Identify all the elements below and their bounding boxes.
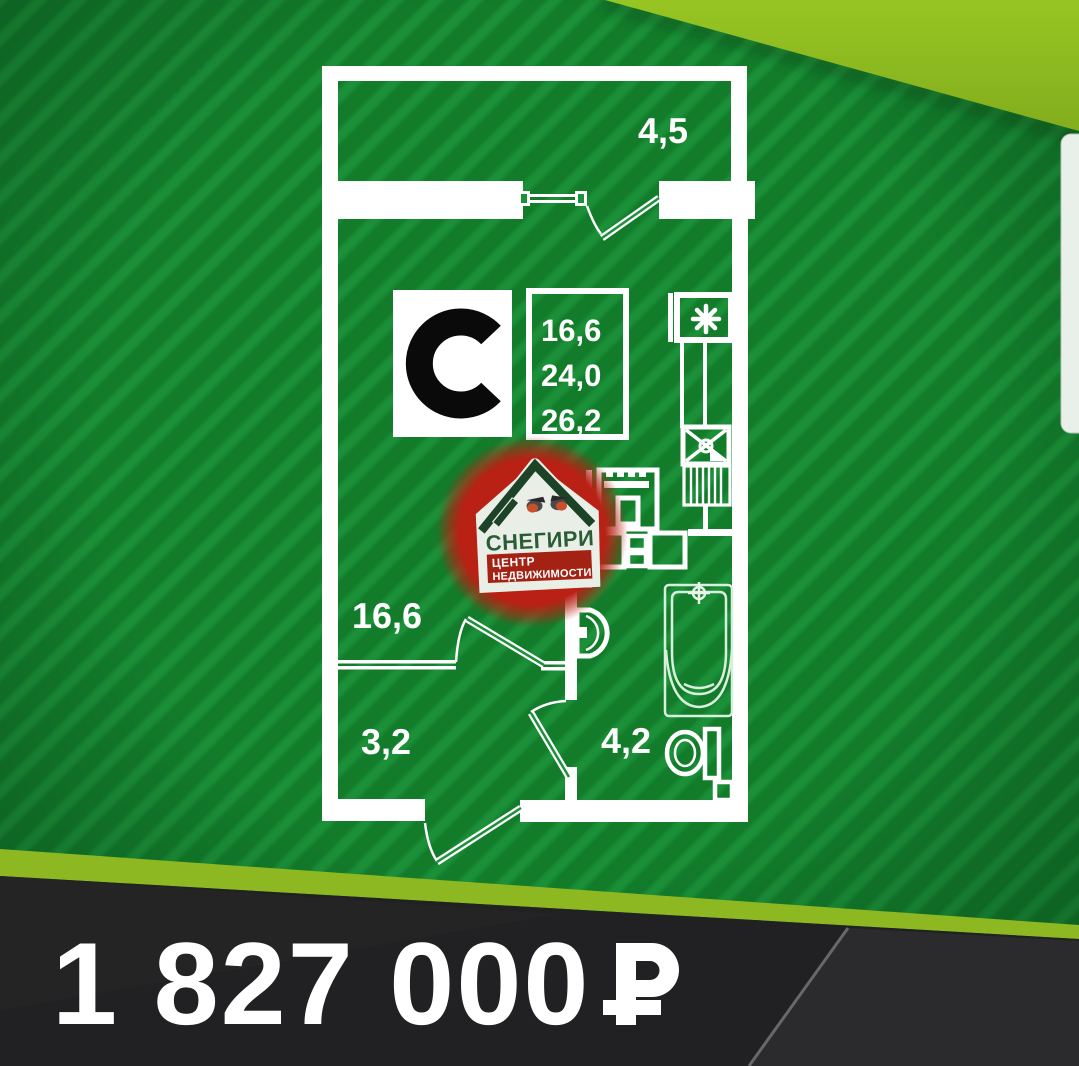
svg-text:16,6: 16,6 (541, 313, 601, 348)
svg-text:ЦЕНТР: ЦЕНТР (492, 554, 536, 570)
svg-text:1 827 000: 1 827 000 (52, 918, 591, 1049)
svg-text:3,2: 3,2 (361, 721, 411, 762)
svg-text:16,6: 16,6 (352, 595, 422, 636)
svg-text:26,2: 26,2 (541, 403, 601, 438)
svg-text:4,5: 4,5 (638, 110, 688, 151)
svg-text:24,0: 24,0 (541, 358, 601, 393)
svg-text:4,2: 4,2 (601, 720, 651, 761)
